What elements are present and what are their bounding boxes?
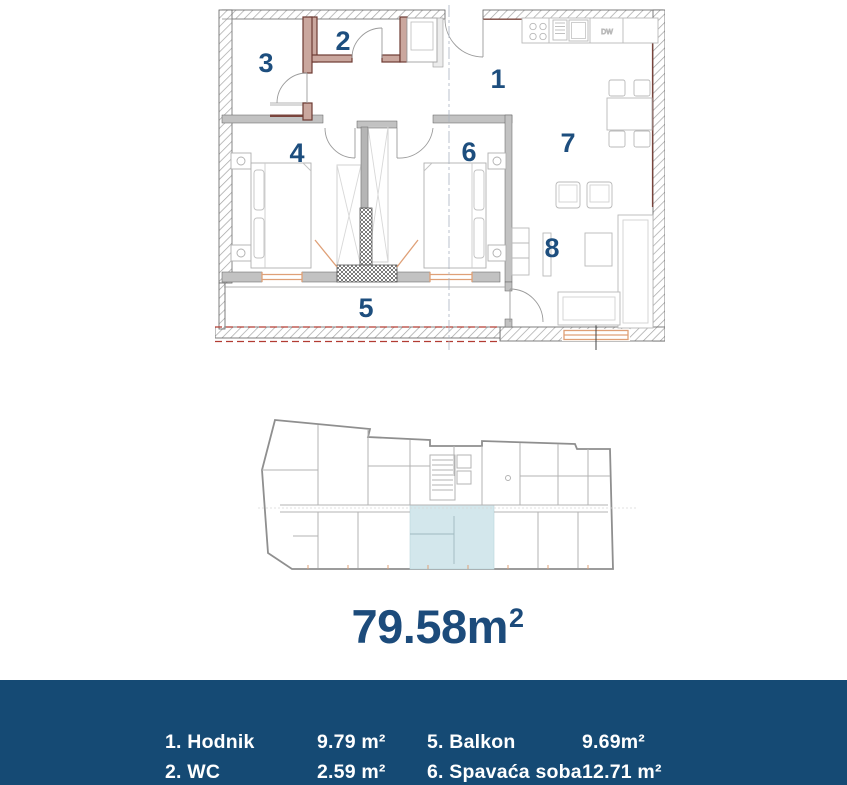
room-number-7: 7 — [560, 128, 575, 158]
legend-room-name: 6. Spavaća soba — [427, 757, 582, 785]
room-number-3: 3 — [258, 48, 273, 78]
pillow — [474, 170, 484, 210]
legend-room-name: 5. Balkon — [427, 727, 582, 757]
highlighted-unit — [410, 505, 494, 569]
bedroom6-furniture — [424, 153, 506, 268]
chair — [634, 80, 650, 96]
room-number-8: 8 — [544, 233, 559, 263]
coffee-table — [585, 233, 612, 266]
room-number-4: 4 — [289, 138, 304, 168]
room-number-6: 6 — [461, 137, 476, 167]
pillow — [474, 218, 484, 258]
living-furniture — [512, 182, 653, 328]
building-key-plan — [258, 416, 638, 591]
total-area-superscript: 2 — [509, 603, 524, 633]
legend-room-area: 9.69m² — [582, 727, 662, 757]
room-number-2: 2 — [335, 26, 350, 56]
dining-set — [607, 80, 652, 147]
chair — [609, 80, 625, 96]
legend-room-area: 2.59 m² — [317, 757, 427, 785]
legend-room-name: 1. Hodnik — [165, 727, 317, 757]
total-area-title: 79.58m2 — [14, 601, 847, 660]
cabinet — [512, 228, 529, 275]
red-partition-walls — [303, 17, 407, 120]
pillow — [254, 170, 264, 210]
total-area-value: 79.58m — [352, 600, 508, 653]
apartment-floorplan-page: DW — [0, 0, 847, 785]
dishwasher-label: DW — [601, 29, 613, 36]
pillow — [254, 218, 264, 258]
chair — [609, 131, 625, 147]
legend-room-name: 2. WC — [165, 757, 317, 785]
room-number-5: 5 — [358, 293, 373, 323]
legend-room-area: 12.71 m² — [582, 757, 662, 785]
bedroom4-furniture — [231, 153, 311, 268]
dining-table — [607, 98, 652, 130]
legend-room-area: 9.79 m² — [317, 727, 427, 757]
room-legend: 1. Hodnik 9.79 m² 5. Balkon 9.69m² 2. WC… — [165, 727, 662, 785]
room-number-1: 1 — [490, 64, 505, 94]
floor-plan: DW — [215, 5, 665, 350]
footer: 1. Hodnik 9.79 m² 5. Balkon 9.69m² 2. WC… — [0, 680, 847, 785]
shaft — [407, 18, 437, 62]
chair — [634, 131, 650, 147]
kitchen-counter: DW — [522, 18, 658, 43]
